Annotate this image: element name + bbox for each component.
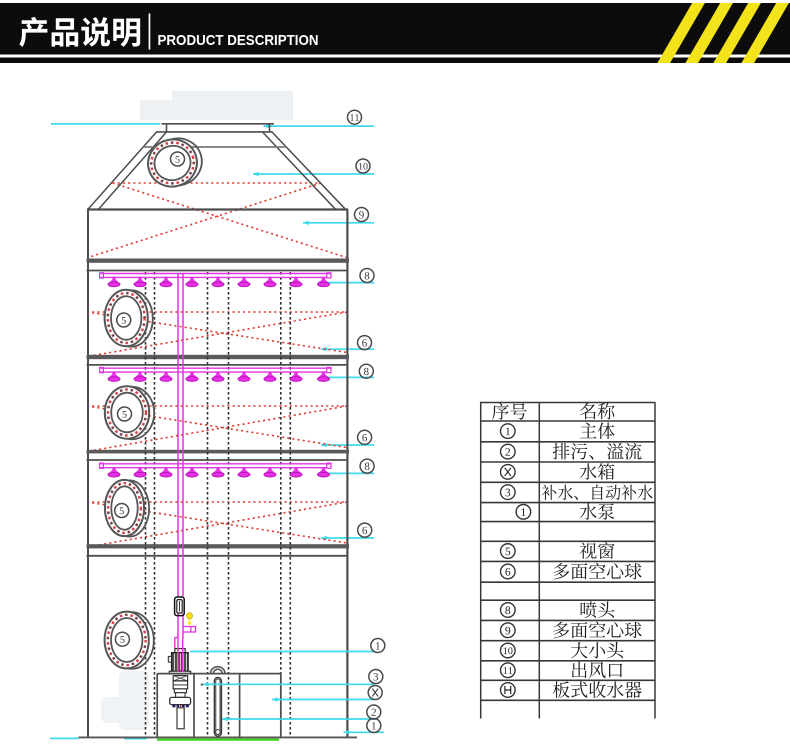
svg-text:PRODUCT DESCRIPTION: PRODUCT DESCRIPTION (158, 32, 319, 49)
